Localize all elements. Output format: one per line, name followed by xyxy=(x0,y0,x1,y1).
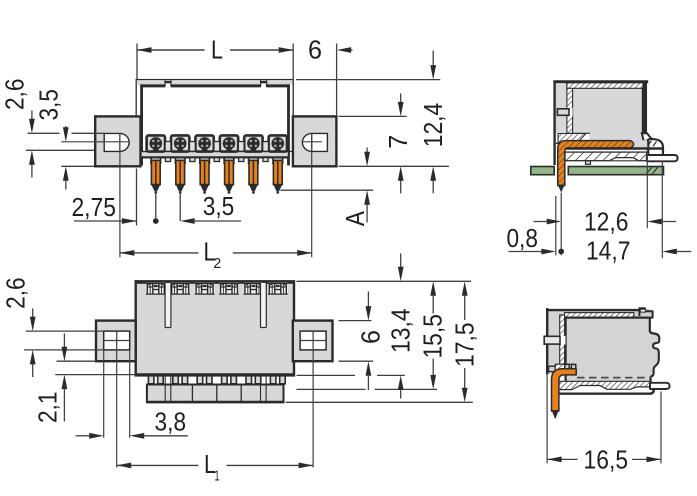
svg-text:6: 6 xyxy=(308,35,322,65)
svg-text:12,6: 12,6 xyxy=(584,206,629,236)
svg-text:7: 7 xyxy=(383,135,413,149)
svg-text:3,5: 3,5 xyxy=(203,191,235,221)
svg-text:1: 1 xyxy=(215,468,220,484)
svg-text:A: A xyxy=(340,211,370,227)
svg-text:3,5: 3,5 xyxy=(33,89,63,121)
svg-text:2: 2 xyxy=(213,256,221,272)
svg-text:13,4: 13,4 xyxy=(386,308,416,353)
svg-text:6: 6 xyxy=(355,330,385,344)
svg-text:2,6: 2,6 xyxy=(0,277,30,309)
svg-text:14,7: 14,7 xyxy=(586,236,631,266)
svg-text:L: L xyxy=(211,35,223,65)
svg-text:2,6: 2,6 xyxy=(0,79,29,111)
svg-text:17,5: 17,5 xyxy=(449,322,479,367)
svg-text:3,8: 3,8 xyxy=(155,406,187,436)
svg-text:16,5: 16,5 xyxy=(584,445,629,475)
svg-text:2,75: 2,75 xyxy=(71,192,116,222)
svg-text:0,8: 0,8 xyxy=(506,223,538,253)
svg-text:12,4: 12,4 xyxy=(418,103,448,148)
svg-text:2,1: 2,1 xyxy=(33,392,63,424)
svg-text:15,5: 15,5 xyxy=(417,314,447,359)
